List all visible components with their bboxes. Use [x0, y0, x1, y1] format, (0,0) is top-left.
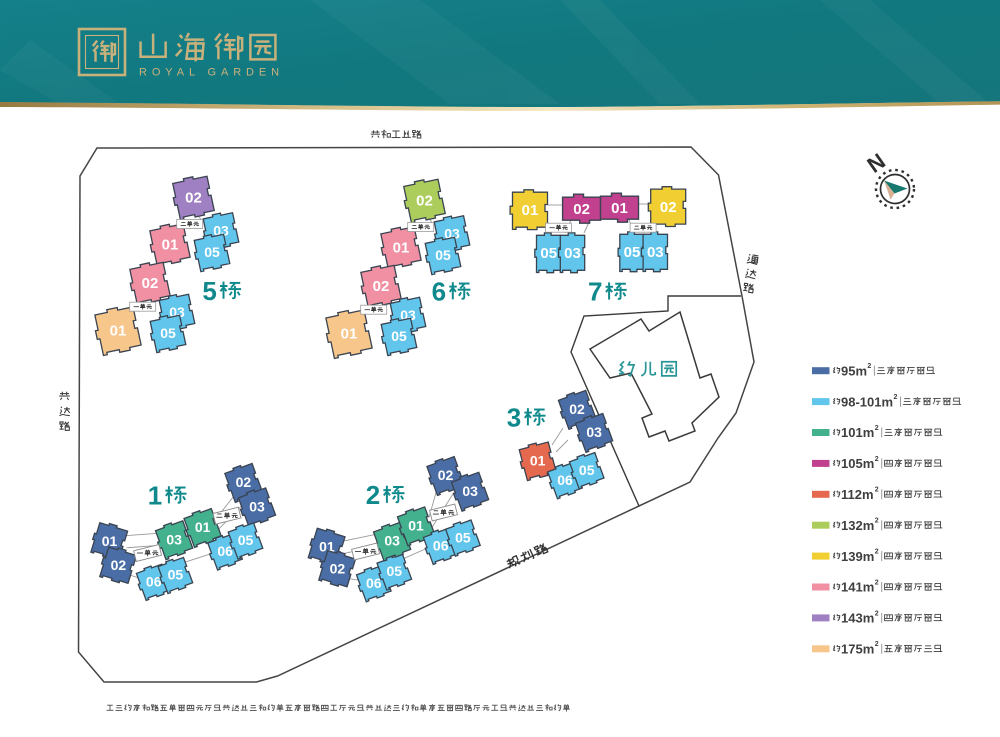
- svg-text:98-101m: 98-101m: [841, 394, 893, 409]
- svg-text:05: 05: [579, 462, 595, 478]
- svg-text:175m: 175m: [841, 641, 874, 656]
- svg-text:01: 01: [110, 322, 127, 339]
- svg-text:02: 02: [236, 474, 252, 490]
- svg-text:112m: 112m: [841, 487, 874, 502]
- svg-text:02: 02: [111, 557, 127, 573]
- svg-text:6: 6: [432, 276, 446, 306]
- svg-text:03: 03: [166, 531, 182, 547]
- svg-text:03: 03: [384, 533, 400, 549]
- svg-text:02: 02: [416, 192, 433, 209]
- svg-text:2: 2: [875, 641, 879, 648]
- svg-text:3: 3: [507, 402, 521, 432]
- svg-text:03: 03: [249, 499, 265, 515]
- svg-text:05: 05: [435, 247, 451, 263]
- svg-text:05: 05: [168, 567, 184, 583]
- svg-text:02: 02: [330, 561, 346, 577]
- svg-text:2: 2: [875, 518, 879, 525]
- svg-text:03: 03: [586, 424, 602, 440]
- svg-text:2: 2: [875, 487, 879, 494]
- svg-text:06: 06: [557, 472, 573, 488]
- svg-text:03: 03: [564, 245, 581, 262]
- svg-text:101m: 101m: [841, 425, 874, 440]
- svg-text:1: 1: [148, 480, 162, 510]
- svg-text:01: 01: [195, 519, 211, 535]
- svg-text:105m: 105m: [841, 456, 874, 471]
- svg-text:02: 02: [373, 278, 390, 295]
- svg-text:02: 02: [573, 201, 590, 218]
- svg-text:05: 05: [160, 325, 176, 341]
- svg-text:132m: 132m: [841, 518, 874, 533]
- svg-text:01: 01: [522, 202, 539, 219]
- svg-text:5: 5: [202, 276, 216, 306]
- svg-text:95m: 95m: [841, 363, 867, 378]
- svg-text:01: 01: [530, 452, 546, 468]
- svg-text:05: 05: [540, 245, 557, 262]
- svg-text:ROYAL GARDEN: ROYAL GARDEN: [139, 67, 284, 79]
- svg-text:03: 03: [647, 244, 664, 261]
- svg-text:01: 01: [611, 200, 628, 217]
- svg-text:143m: 143m: [841, 611, 874, 626]
- svg-text:01: 01: [393, 239, 410, 256]
- svg-text:05: 05: [387, 563, 403, 579]
- svg-text:05: 05: [455, 529, 471, 545]
- svg-text:2: 2: [875, 549, 879, 556]
- svg-text:2: 2: [875, 425, 879, 432]
- svg-text:05: 05: [391, 328, 407, 344]
- svg-text:05: 05: [238, 532, 254, 548]
- svg-text:02: 02: [185, 189, 202, 206]
- svg-text:2: 2: [366, 480, 380, 510]
- svg-text:2: 2: [875, 579, 879, 586]
- svg-text:02: 02: [438, 467, 454, 483]
- svg-text:139m: 139m: [841, 549, 874, 564]
- svg-text:01: 01: [102, 533, 118, 549]
- svg-text:2: 2: [894, 394, 898, 401]
- svg-text:141m: 141m: [841, 580, 874, 595]
- svg-text:01: 01: [341, 325, 358, 342]
- svg-text:06: 06: [366, 575, 382, 591]
- svg-text:01: 01: [408, 518, 424, 534]
- svg-text:06: 06: [146, 574, 162, 590]
- svg-text:2: 2: [867, 363, 871, 370]
- svg-text:2: 2: [875, 610, 879, 617]
- svg-text:01: 01: [162, 236, 179, 253]
- svg-text:02: 02: [660, 199, 677, 216]
- svg-text:2: 2: [875, 456, 879, 463]
- svg-text:05: 05: [204, 244, 220, 260]
- svg-text:7: 7: [588, 277, 602, 307]
- svg-text:02: 02: [142, 275, 159, 292]
- svg-text:03: 03: [462, 483, 478, 499]
- svg-text:02: 02: [569, 401, 585, 417]
- svg-text:06: 06: [433, 538, 449, 554]
- svg-text:05: 05: [624, 244, 641, 261]
